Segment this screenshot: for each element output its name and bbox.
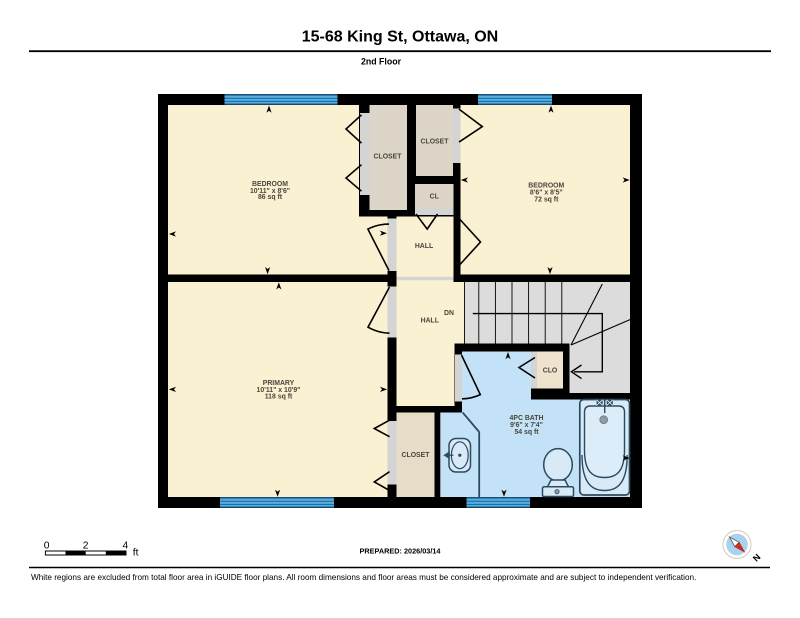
svg-text:15-68 King St, Ottawa, ON: 15-68 King St, Ottawa, ON bbox=[302, 29, 498, 46]
svg-text:0: 0 bbox=[44, 540, 50, 551]
svg-text:2nd Floor: 2nd Floor bbox=[361, 57, 402, 67]
svg-text:DN: DN bbox=[444, 310, 454, 317]
svg-text:54 sq ft: 54 sq ft bbox=[514, 429, 539, 436]
svg-text:PREPARED: 2026/03/14: PREPARED: 2026/03/14 bbox=[360, 547, 442, 556]
svg-text:BEDROOM: BEDROOM bbox=[528, 183, 564, 190]
svg-text:2: 2 bbox=[83, 540, 89, 551]
svg-text:HALL: HALL bbox=[421, 318, 439, 325]
svg-text:ft: ft bbox=[133, 548, 139, 559]
svg-text:White regions are excluded fro: White regions are excluded from total fl… bbox=[31, 573, 696, 582]
svg-text:CL: CL bbox=[430, 194, 439, 201]
svg-text:BEDROOM: BEDROOM bbox=[252, 181, 288, 188]
svg-text:4PC BATH: 4PC BATH bbox=[510, 415, 544, 422]
svg-text:CLO: CLO bbox=[543, 367, 558, 374]
svg-text:HALL: HALL bbox=[415, 243, 433, 250]
svg-text:CLOSET: CLOSET bbox=[421, 139, 450, 146]
svg-text:118 sq ft: 118 sq ft bbox=[265, 394, 293, 401]
svg-text:4: 4 bbox=[123, 540, 129, 551]
svg-text:72 sq ft: 72 sq ft bbox=[534, 197, 559, 204]
svg-text:86 sq ft: 86 sq ft bbox=[258, 194, 283, 201]
svg-text:CLOSET: CLOSET bbox=[374, 153, 403, 160]
svg-text:CLOSET: CLOSET bbox=[402, 452, 431, 459]
